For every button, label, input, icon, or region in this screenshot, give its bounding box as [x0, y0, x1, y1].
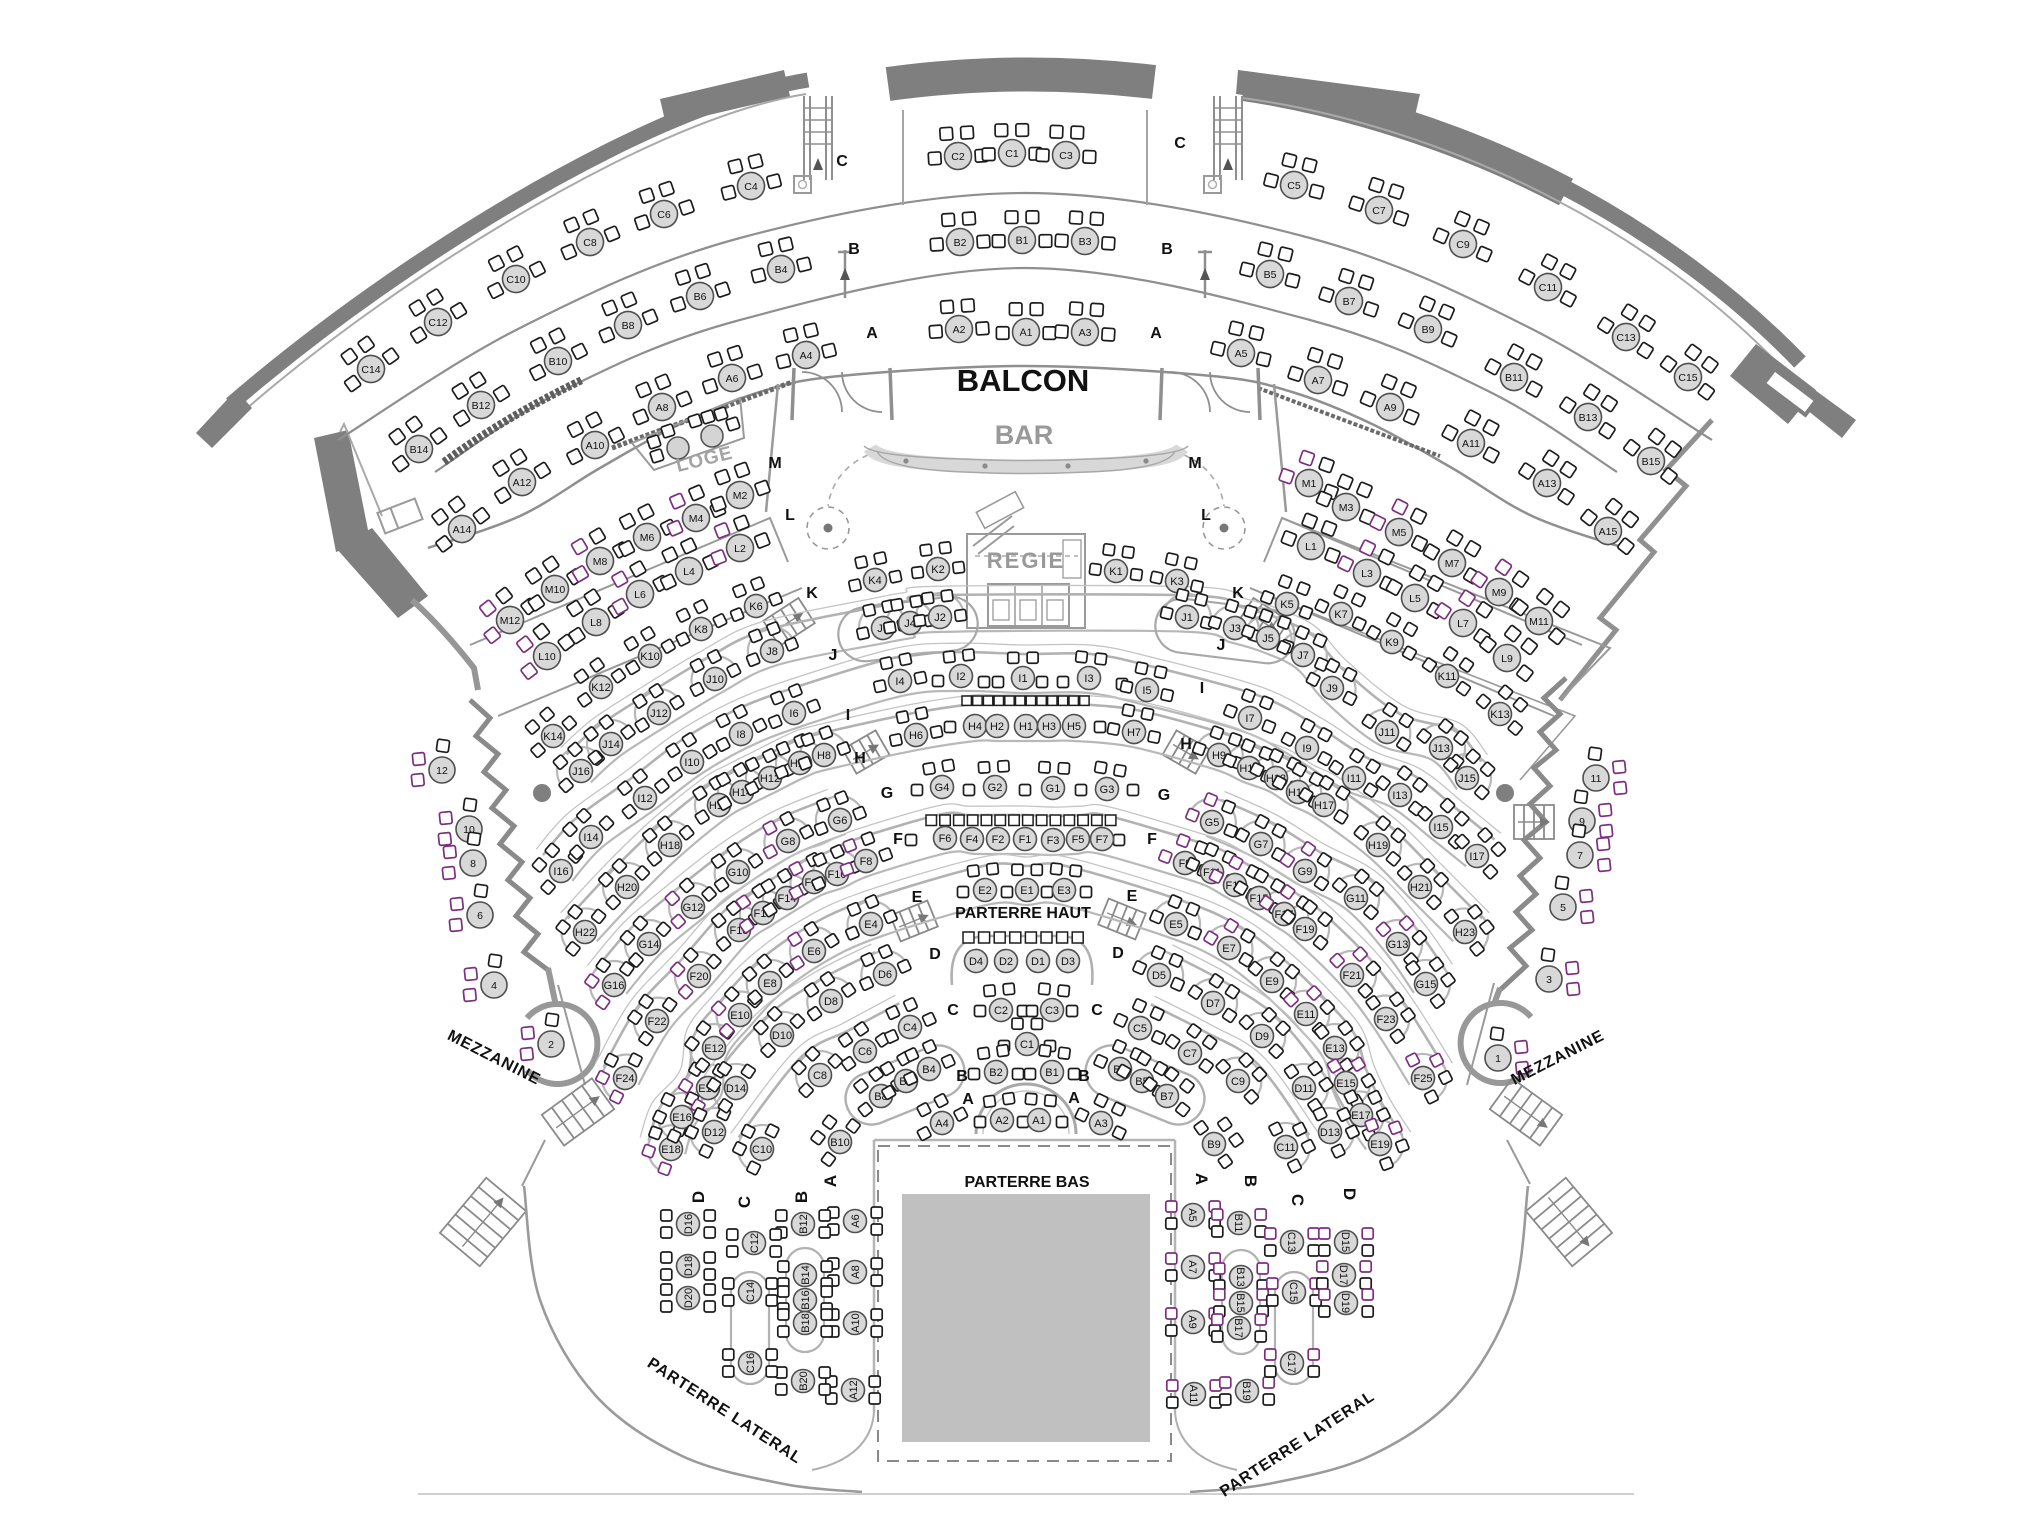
svg-text:C5: C5 [1133, 1023, 1147, 1035]
svg-text:B14: B14 [410, 444, 429, 456]
svg-text:B12: B12 [798, 1214, 810, 1234]
svg-text:C: C [1174, 135, 1186, 152]
svg-text:C17: C17 [1285, 1353, 1297, 1373]
svg-text:D: D [1112, 945, 1124, 962]
svg-text:G: G [1158, 787, 1170, 804]
svg-text:I9: I9 [1302, 743, 1311, 755]
svg-text:REGIE: REGIE [987, 548, 1065, 573]
svg-text:E7: E7 [1222, 943, 1235, 955]
svg-text:G14: G14 [639, 939, 660, 951]
svg-text:J: J [1217, 637, 1226, 654]
svg-text:H20: H20 [617, 882, 637, 894]
svg-text:M9: M9 [1492, 587, 1507, 599]
svg-text:I12: I12 [637, 793, 652, 805]
svg-text:C12: C12 [428, 317, 447, 329]
svg-text:E6: E6 [807, 946, 820, 958]
svg-text:I17: I17 [1469, 851, 1484, 863]
svg-text:A: A [866, 325, 878, 342]
svg-text:H: H [854, 750, 866, 767]
svg-text:G10: G10 [728, 867, 749, 879]
svg-text:I: I [846, 707, 850, 724]
svg-text:J11: J11 [1379, 727, 1396, 739]
svg-text:B: B [1241, 1175, 1260, 1187]
svg-text:D17: D17 [1337, 1265, 1349, 1285]
svg-text:B20: B20 [798, 1371, 810, 1391]
svg-text:G12: G12 [683, 902, 704, 914]
svg-text:12: 12 [436, 765, 448, 777]
svg-text:I: I [1200, 680, 1204, 697]
svg-text:C4: C4 [903, 1022, 917, 1034]
svg-text:C10: C10 [506, 274, 525, 286]
svg-text:D13: D13 [1320, 1127, 1340, 1139]
svg-text:K1: K1 [1109, 566, 1122, 578]
svg-text:A8: A8 [656, 402, 669, 414]
svg-text:A: A [1192, 1173, 1211, 1185]
svg-text:G: G [881, 785, 893, 802]
svg-text:H2: H2 [990, 721, 1004, 733]
svg-text:K4: K4 [868, 575, 881, 587]
svg-text:F23: F23 [1377, 1014, 1396, 1026]
svg-text:F21: F21 [1343, 970, 1362, 982]
svg-text:B8: B8 [622, 320, 635, 332]
svg-text:B: B [1078, 1068, 1090, 1085]
svg-text:A7: A7 [1312, 375, 1325, 387]
svg-text:C7: C7 [1372, 205, 1386, 217]
svg-text:K5: K5 [1280, 599, 1293, 611]
svg-text:E1: E1 [1020, 885, 1034, 897]
svg-text:B16: B16 [800, 1290, 812, 1310]
svg-text:A: A [962, 1091, 974, 1108]
svg-text:B13: B13 [1234, 1267, 1246, 1287]
svg-text:D2: D2 [999, 956, 1013, 968]
svg-text:C8: C8 [813, 1070, 827, 1082]
svg-text:A12: A12 [848, 1380, 860, 1400]
svg-text:B1: B1 [1045, 1067, 1058, 1079]
svg-text:A1: A1 [1032, 1115, 1045, 1127]
svg-text:E19: E19 [1370, 1139, 1390, 1151]
svg-text:D15: D15 [1339, 1232, 1351, 1252]
svg-text:M5: M5 [1392, 527, 1407, 539]
svg-text:C11: C11 [1276, 1142, 1295, 1154]
svg-text:A7: A7 [1186, 1260, 1198, 1273]
svg-text:E15: E15 [1336, 1078, 1356, 1090]
svg-text:F25: F25 [1414, 1073, 1433, 1085]
svg-text:A13: A13 [1538, 478, 1557, 490]
svg-text:C10: C10 [752, 1144, 772, 1156]
svg-text:C: C [836, 153, 848, 170]
svg-text:J1: J1 [1181, 612, 1193, 624]
svg-text:G2: G2 [988, 782, 1003, 794]
svg-text:E3: E3 [1057, 885, 1070, 897]
svg-text:J10: J10 [706, 674, 724, 686]
svg-text:M8: M8 [593, 556, 608, 568]
svg-text:A6: A6 [850, 1214, 862, 1227]
svg-text:A6: A6 [726, 373, 739, 385]
svg-text:E4: E4 [864, 919, 877, 931]
svg-text:K10: K10 [640, 651, 660, 663]
svg-text:E10: E10 [730, 1010, 750, 1022]
svg-text:H22: H22 [575, 927, 595, 939]
svg-text:I14: I14 [583, 832, 598, 844]
svg-text:F22: F22 [648, 1016, 667, 1028]
svg-text:M11: M11 [1529, 616, 1549, 628]
svg-text:M1: M1 [1302, 478, 1317, 490]
svg-text:C13: C13 [1285, 1232, 1297, 1252]
svg-text:I1: I1 [1018, 673, 1027, 685]
svg-text:A4: A4 [800, 350, 813, 362]
svg-text:J5: J5 [1262, 633, 1274, 645]
svg-text:C15: C15 [1678, 372, 1697, 384]
svg-text:M3: M3 [1339, 502, 1354, 514]
svg-text:E18: E18 [661, 1144, 681, 1156]
svg-text:C16: C16 [745, 1353, 757, 1373]
svg-text:C6: C6 [858, 1046, 872, 1058]
svg-text:M12: M12 [500, 615, 521, 627]
svg-text:A15: A15 [1599, 526, 1618, 538]
svg-text:BAR: BAR [995, 420, 1054, 450]
svg-text:D12: D12 [704, 1127, 724, 1139]
svg-text:D19: D19 [1339, 1293, 1351, 1313]
svg-text:B9: B9 [1422, 324, 1435, 336]
svg-text:B13: B13 [1579, 412, 1598, 424]
svg-text:C: C [735, 1196, 754, 1208]
svg-text:D8: D8 [824, 996, 838, 1008]
svg-text:C2: C2 [951, 151, 965, 163]
svg-text:F5: F5 [1072, 834, 1085, 846]
svg-text:H21: H21 [1410, 882, 1430, 894]
svg-text:I13: I13 [1392, 790, 1407, 802]
svg-text:L6: L6 [634, 589, 646, 601]
svg-text:A4: A4 [935, 1118, 948, 1130]
svg-text:I11: I11 [1347, 773, 1361, 785]
svg-text:D4: D4 [969, 956, 983, 968]
svg-text:K13: K13 [1490, 709, 1510, 721]
svg-text:M: M [1188, 455, 1201, 472]
svg-text:K12: K12 [591, 682, 611, 694]
svg-text:E12: E12 [704, 1043, 724, 1055]
svg-text:A10: A10 [850, 1313, 862, 1333]
svg-text:B14: B14 [800, 1265, 812, 1285]
svg-text:F6: F6 [939, 833, 952, 845]
svg-text:I6: I6 [789, 708, 798, 720]
svg-text:8: 8 [470, 858, 476, 870]
svg-text:I5: I5 [1142, 685, 1151, 697]
svg-text:A14: A14 [453, 524, 472, 536]
svg-text:H19: H19 [1368, 840, 1388, 852]
svg-text:A: A [1150, 325, 1162, 342]
svg-text:L2: L2 [734, 543, 746, 555]
svg-text:L7: L7 [1457, 618, 1469, 630]
svg-text:D10: D10 [772, 1030, 792, 1042]
svg-text:A: A [1068, 1090, 1080, 1107]
svg-text:A5: A5 [1186, 1208, 1198, 1221]
svg-text:F4: F4 [966, 834, 979, 846]
svg-text:D14: D14 [726, 1083, 746, 1095]
svg-text:K14: K14 [543, 731, 563, 743]
svg-text:B15: B15 [1234, 1293, 1246, 1313]
svg-text:C6: C6 [657, 209, 671, 221]
svg-text:L: L [1201, 507, 1211, 524]
svg-text:D16: D16 [683, 1214, 695, 1234]
svg-text:A11: A11 [1187, 1385, 1199, 1404]
svg-text:A12: A12 [513, 477, 532, 489]
svg-text:G7: G7 [1254, 839, 1269, 851]
svg-text:C3: C3 [1059, 150, 1073, 162]
svg-text:C11: C11 [1539, 282, 1558, 294]
svg-text:B18: B18 [800, 1313, 812, 1333]
svg-text:H6: H6 [909, 730, 923, 742]
svg-text:5: 5 [1560, 902, 1566, 914]
svg-text:J9: J9 [1326, 683, 1338, 695]
svg-text:I16: I16 [553, 866, 568, 878]
svg-text:11: 11 [1591, 773, 1602, 785]
svg-text:E: E [1127, 888, 1138, 905]
svg-text:M: M [768, 455, 781, 472]
svg-text:A5: A5 [1235, 348, 1248, 360]
svg-text:G6: G6 [833, 815, 848, 827]
svg-text:C5: C5 [1287, 180, 1301, 192]
svg-text:G8: G8 [781, 836, 796, 848]
svg-text:M10: M10 [545, 584, 566, 596]
svg-text:C2: C2 [994, 1005, 1008, 1017]
svg-text:J15: J15 [1458, 773, 1476, 785]
svg-text:B7: B7 [1343, 296, 1356, 308]
svg-text:A10: A10 [586, 440, 605, 452]
svg-text:D9: D9 [1255, 1031, 1269, 1043]
svg-text:A: A [821, 1175, 840, 1187]
svg-text:C9: C9 [1456, 239, 1470, 251]
svg-text:E13: E13 [1325, 1043, 1345, 1055]
svg-text:J3: J3 [1229, 623, 1241, 635]
svg-text:B1: B1 [1016, 235, 1029, 247]
svg-text:B15: B15 [1642, 456, 1661, 468]
svg-text:I8: I8 [736, 729, 745, 741]
svg-text:A2: A2 [995, 1115, 1008, 1127]
svg-text:F: F [1147, 831, 1157, 848]
svg-text:B: B [956, 1068, 968, 1085]
svg-text:M7: M7 [1445, 558, 1460, 570]
svg-text:E2: E2 [978, 885, 991, 897]
svg-text:4: 4 [491, 980, 497, 992]
svg-text:F3: F3 [1047, 835, 1060, 847]
svg-text:H7: H7 [1127, 727, 1141, 739]
svg-text:C14: C14 [745, 1282, 757, 1302]
svg-text:J12: J12 [650, 708, 668, 720]
svg-text:C: C [1091, 1002, 1103, 1019]
svg-text:B4: B4 [922, 1064, 935, 1076]
svg-text:C14: C14 [361, 364, 380, 376]
svg-text:A3: A3 [1079, 327, 1092, 339]
svg-text:F2: F2 [992, 834, 1005, 846]
svg-text:H17: H17 [1314, 800, 1334, 812]
svg-text:B6: B6 [694, 291, 707, 303]
svg-text:D: D [689, 1191, 708, 1203]
svg-text:G13: G13 [1388, 939, 1409, 951]
svg-text:D11: D11 [1294, 1083, 1313, 1095]
svg-text:D18: D18 [683, 1256, 695, 1276]
svg-text:B11: B11 [1505, 372, 1523, 384]
svg-text:A8: A8 [850, 1265, 862, 1278]
svg-text:C9: C9 [1231, 1076, 1245, 1088]
svg-text:D1: D1 [1031, 956, 1045, 968]
svg-text:G16: G16 [604, 980, 625, 992]
svg-text:E8: E8 [763, 978, 776, 990]
svg-text:B12: B12 [472, 400, 491, 412]
svg-text:PARTERRE HAUT: PARTERRE HAUT [955, 905, 1091, 922]
svg-text:G15: G15 [1416, 979, 1437, 991]
svg-text:C4: C4 [744, 181, 758, 193]
svg-text:K3: K3 [1170, 576, 1183, 588]
svg-text:1: 1 [1495, 1053, 1501, 1065]
svg-text:B2: B2 [989, 1067, 1002, 1079]
svg-text:F1: F1 [1019, 834, 1032, 846]
svg-text:M4: M4 [689, 513, 704, 525]
svg-text:6: 6 [477, 910, 483, 922]
svg-text:G4: G4 [935, 782, 950, 794]
svg-text:D3: D3 [1061, 956, 1075, 968]
svg-text:B3: B3 [1079, 236, 1092, 248]
svg-text:G1: G1 [1046, 783, 1061, 795]
svg-text:L10: L10 [538, 651, 556, 663]
svg-text:C7: C7 [1183, 1048, 1197, 1060]
svg-text:B19: B19 [1240, 1381, 1252, 1401]
svg-text:G11: G11 [1346, 893, 1366, 905]
svg-text:D7: D7 [1206, 998, 1220, 1010]
svg-text:M2: M2 [733, 490, 748, 502]
svg-text:B9: B9 [1207, 1139, 1220, 1151]
svg-text:H8: H8 [817, 750, 831, 762]
svg-text:C13: C13 [1616, 332, 1635, 344]
svg-text:F19: F19 [1296, 924, 1315, 936]
svg-text:E: E [912, 889, 923, 906]
svg-text:J7: J7 [1297, 650, 1309, 662]
svg-text:J2: J2 [934, 612, 946, 624]
svg-text:G3: G3 [1100, 784, 1115, 796]
svg-text:F: F [893, 831, 903, 848]
svg-text:C: C [1288, 1194, 1307, 1206]
svg-text:K2: K2 [931, 564, 944, 576]
svg-text:B4: B4 [775, 264, 788, 276]
svg-text:A9: A9 [1186, 1315, 1198, 1328]
svg-text:I7: I7 [1245, 713, 1254, 725]
svg-text:H5: H5 [1067, 721, 1081, 733]
svg-text:PARTERRE BAS: PARTERRE BAS [964, 1174, 1089, 1191]
svg-text:D6: D6 [878, 969, 892, 981]
svg-text:C12: C12 [749, 1233, 761, 1253]
svg-text:D: D [1340, 1188, 1359, 1200]
svg-text:J: J [829, 647, 838, 664]
svg-text:K: K [1232, 585, 1244, 602]
svg-text:D: D [929, 946, 941, 963]
svg-text:A1: A1 [1020, 327, 1033, 339]
svg-text:BALCON: BALCON [957, 363, 1090, 398]
svg-text:C8: C8 [583, 237, 597, 249]
svg-text:A2: A2 [953, 324, 966, 336]
svg-text:B: B [792, 1191, 811, 1203]
svg-text:7: 7 [1577, 850, 1583, 862]
svg-text:F20: F20 [690, 971, 709, 983]
svg-text:2: 2 [548, 1039, 554, 1051]
svg-text:B10: B10 [549, 356, 568, 368]
svg-text:H23: H23 [1455, 927, 1475, 939]
svg-text:G5: G5 [1205, 817, 1220, 829]
svg-text:F24: F24 [616, 1073, 635, 1085]
svg-text:M6: M6 [640, 532, 655, 544]
svg-text:L1: L1 [1305, 541, 1317, 553]
svg-text:K11: K11 [1438, 671, 1457, 683]
svg-text:H3: H3 [1042, 721, 1056, 733]
svg-text:J16: J16 [572, 766, 590, 778]
svg-text:C1: C1 [1005, 148, 1019, 160]
svg-text:J14: J14 [602, 739, 620, 751]
svg-text:L5: L5 [1409, 593, 1421, 605]
svg-text:H18: H18 [660, 840, 680, 852]
svg-text:L3: L3 [1361, 568, 1373, 580]
svg-text:L4: L4 [683, 566, 695, 578]
svg-text:B17: B17 [1232, 1318, 1244, 1338]
svg-text:A3: A3 [1094, 1118, 1107, 1130]
svg-text:L9: L9 [1501, 653, 1513, 665]
svg-text:E11: E11 [1297, 1009, 1316, 1021]
svg-text:B: B [1161, 241, 1173, 258]
svg-text:C: C [947, 1002, 959, 1019]
svg-text:3: 3 [1546, 974, 1552, 986]
svg-text:H: H [1180, 736, 1192, 753]
svg-text:J8: J8 [766, 646, 778, 658]
svg-text:C1: C1 [1020, 1039, 1034, 1051]
svg-text:E9: E9 [1265, 976, 1278, 988]
svg-text:J13: J13 [1432, 743, 1450, 755]
svg-text:E5: E5 [1169, 919, 1182, 931]
svg-text:D20: D20 [683, 1288, 695, 1308]
svg-text:B5: B5 [1264, 269, 1277, 281]
svg-text:F8: F8 [860, 856, 873, 868]
svg-text:F7: F7 [1096, 834, 1109, 846]
svg-text:D5: D5 [1152, 970, 1166, 982]
svg-text:H4: H4 [968, 721, 982, 733]
svg-text:I2: I2 [956, 671, 965, 683]
svg-text:H1: H1 [1019, 721, 1033, 733]
svg-text:B2: B2 [954, 237, 967, 249]
svg-text:I10: I10 [684, 757, 699, 769]
svg-text:A9: A9 [1384, 402, 1397, 414]
svg-text:I15: I15 [1433, 822, 1448, 834]
svg-text:K9: K9 [1385, 637, 1398, 649]
svg-text:B11: B11 [1232, 1214, 1244, 1233]
svg-text:C3: C3 [1045, 1005, 1059, 1017]
svg-text:B7: B7 [1160, 1091, 1173, 1103]
svg-text:C15: C15 [1287, 1282, 1299, 1302]
svg-text:L: L [785, 507, 795, 524]
svg-text:E16: E16 [672, 1112, 692, 1124]
svg-text:G9: G9 [1298, 866, 1313, 878]
svg-text:I4: I4 [895, 676, 904, 688]
svg-text:I3: I3 [1084, 673, 1093, 685]
svg-text:B10: B10 [830, 1137, 850, 1149]
svg-text:B: B [848, 241, 860, 258]
svg-text:K8: K8 [694, 624, 707, 636]
svg-text:K: K [806, 585, 818, 602]
svg-text:L8: L8 [590, 617, 602, 629]
svg-text:A11: A11 [1462, 438, 1480, 450]
svg-text:K6: K6 [749, 601, 762, 613]
svg-text:K7: K7 [1334, 609, 1347, 621]
